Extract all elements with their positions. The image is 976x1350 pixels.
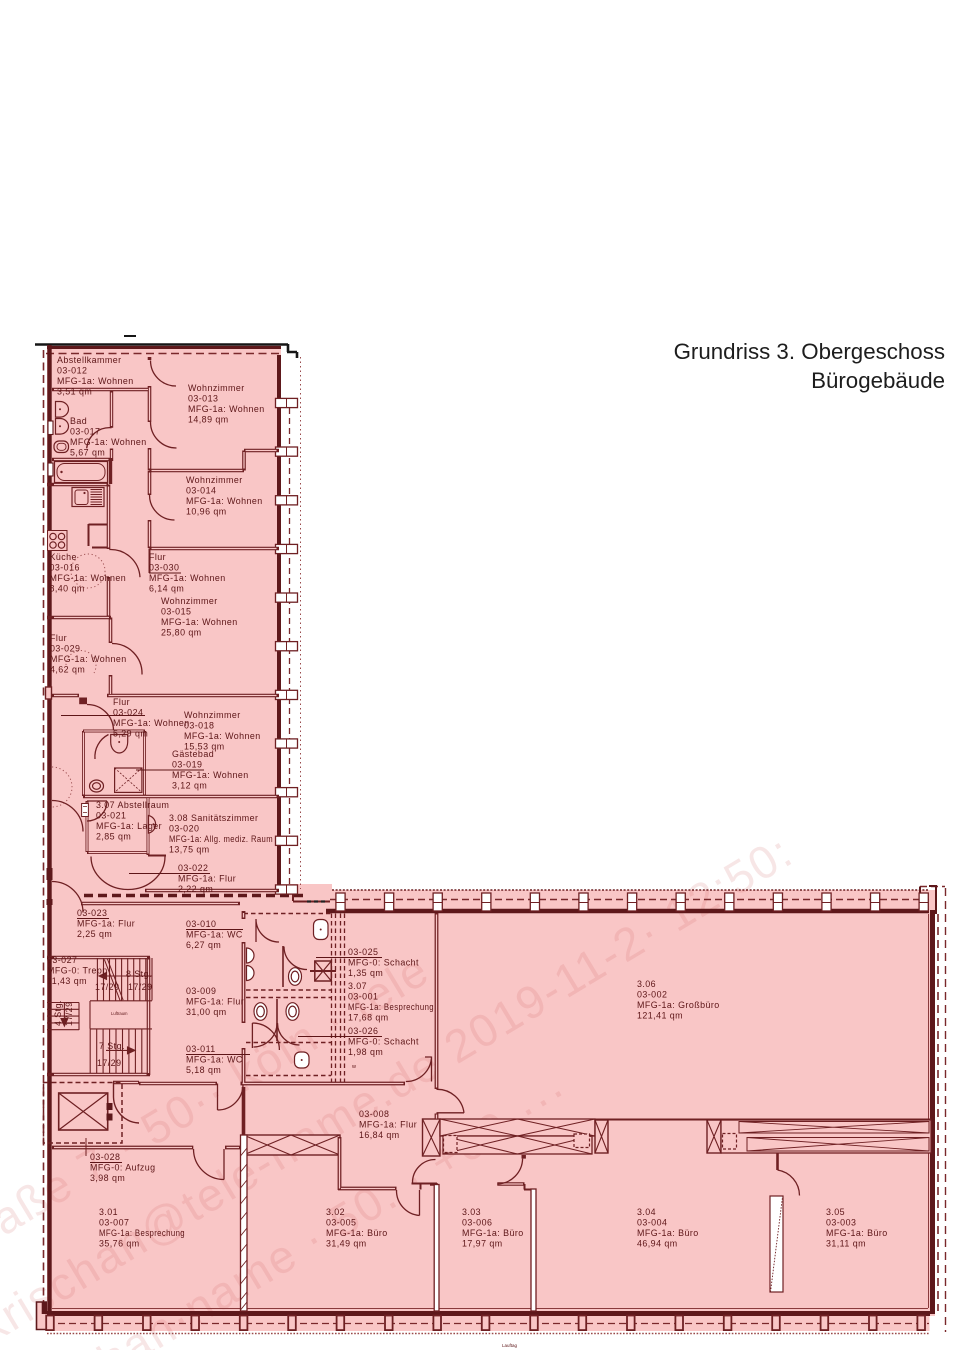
svg-text:Grundriss 3. Obergeschoss: Grundriss 3. Obergeschoss xyxy=(674,339,945,364)
svg-text:7 Stg.: 7 Stg. xyxy=(99,1041,125,1051)
svg-text:8 Stg.: 8 Stg. xyxy=(126,969,152,979)
svg-text:17/29: 17/29 xyxy=(95,982,119,992)
svg-text:Luftraum: Luftraum xyxy=(111,1011,128,1016)
svg-text:Bürogebäude: Bürogebäude xyxy=(811,368,945,393)
svg-text:17/29: 17/29 xyxy=(128,982,152,992)
svg-text:17/29: 17/29 xyxy=(97,1058,121,1068)
svg-text:4 Stg.: 4 Stg. xyxy=(53,1000,63,1026)
svg-text:w: w xyxy=(351,1064,356,1070)
svg-text:17/29: 17/29 xyxy=(64,1002,74,1026)
svg-text:Lauftag: Lauftag xyxy=(502,1343,518,1348)
